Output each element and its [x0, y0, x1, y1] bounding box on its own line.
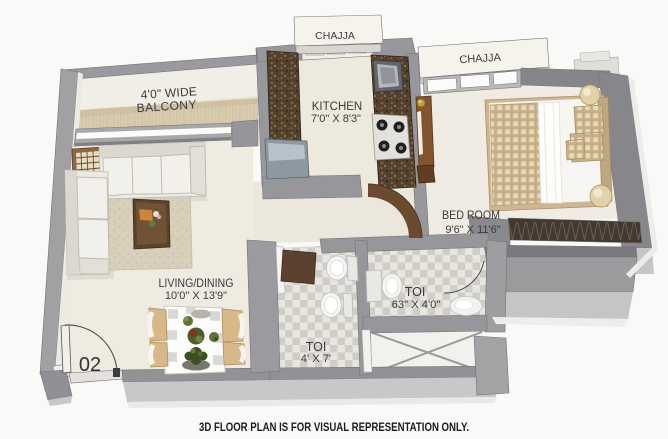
svg-text:7'0" X 8'3": 7'0" X 8'3" — [311, 113, 361, 125]
svg-text:63" X 4'0": 63" X 4'0" — [392, 299, 441, 311]
svg-text:KITCHEN: KITCHEN — [312, 101, 362, 113]
svg-text:10'0" X 13'9": 10'0" X 13'9" — [165, 290, 227, 302]
svg-text:4' X 7': 4' X 7' — [301, 353, 331, 365]
svg-text:LIVING/DINING: LIVING/DINING — [159, 276, 234, 290]
svg-text:TOI: TOI — [306, 340, 327, 354]
svg-text:9'6" X 11'6": 9'6" X 11'6" — [445, 224, 500, 236]
svg-text:3D FLOOR PLAN IS FOR VISUAL RE: 3D FLOOR PLAN IS FOR VISUAL REPRESENTATI… — [199, 420, 469, 434]
svg-text:BED ROOM: BED ROOM — [442, 208, 500, 222]
svg-text:02: 02 — [79, 354, 101, 376]
svg-text:CHAJJA: CHAJJA — [315, 30, 355, 42]
svg-text:TOI: TOI — [405, 285, 426, 299]
